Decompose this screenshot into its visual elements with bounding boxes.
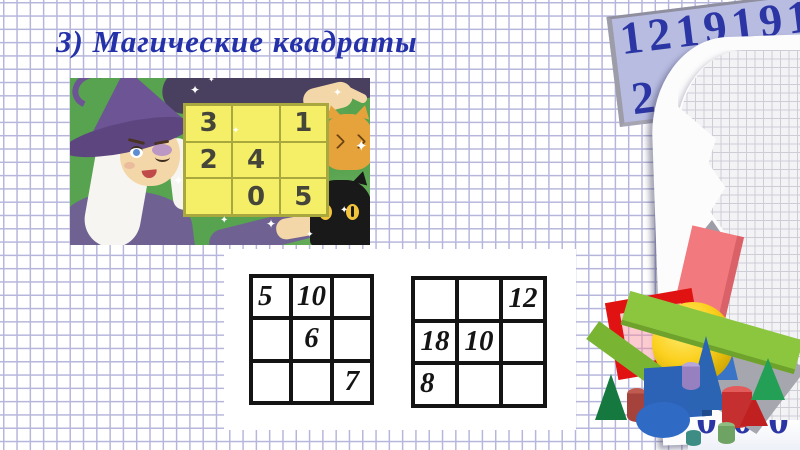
sparkle-icon: ✦ xyxy=(333,88,342,99)
purple-cylinder-shape xyxy=(682,362,700,390)
grid-cell: 5 xyxy=(251,276,291,318)
grid-cell: 8 xyxy=(413,363,457,406)
grid-cell: 12 xyxy=(501,278,545,321)
grid-cell xyxy=(251,318,291,360)
grid-cell xyxy=(501,363,545,406)
green-cone-shape xyxy=(595,374,627,420)
grid-cell xyxy=(332,276,372,318)
grid-cell: 10 xyxy=(291,276,331,318)
sparkle-icon: ✦ xyxy=(355,140,368,155)
magic-cell: 0 xyxy=(232,178,279,215)
witch-winking-eye xyxy=(155,152,170,162)
sparkle-icon: ✦ xyxy=(266,218,276,230)
sparkle-icon: ✦ xyxy=(232,126,240,135)
sparkle-icon: ✦ xyxy=(208,78,215,84)
grid-cell: 7 xyxy=(332,361,372,403)
grid-cell: 6 xyxy=(291,318,331,360)
grid-cell xyxy=(413,278,457,321)
sparkle-icon: ✦ xyxy=(220,216,228,226)
magic-cell: 1 xyxy=(280,105,327,142)
magic-cell: 2 xyxy=(185,142,232,179)
grid-cell xyxy=(501,321,545,364)
magic-cell xyxy=(185,178,232,215)
witch-eye xyxy=(130,146,143,158)
grid-cell: 10 xyxy=(457,321,501,364)
slide-title: 3) Магические квадраты xyxy=(56,24,536,60)
grid-cell xyxy=(457,363,501,406)
sparkle-icon: ✦ xyxy=(173,174,184,187)
sparkle-icon: ✦ xyxy=(306,230,314,239)
magic-cell: 3 xyxy=(185,105,232,142)
magic-cell: 5 xyxy=(280,178,327,215)
puzzle-grid-right: 12 18 10 8 xyxy=(411,276,547,408)
grid-cell: 18 xyxy=(413,321,457,364)
magic-cell xyxy=(280,142,327,179)
magic-cell xyxy=(232,105,279,142)
witch-illustration: 3 1 2 4 0 5 ✦ ✦ ✦ ✦ ✦ ✦ ✦ ✦ ✦ ✦ xyxy=(70,78,370,245)
slide-background: 3) Магические квадраты 1219191 222 000 xyxy=(0,0,800,450)
blue-sphere-shape xyxy=(636,402,690,438)
grid-cell xyxy=(332,318,372,360)
teal-cylinder-shape xyxy=(686,430,701,446)
magic-cell: 4 xyxy=(232,142,279,179)
grid-cell xyxy=(291,361,331,403)
magic-square: 3 1 2 4 0 5 xyxy=(183,103,329,217)
green-cylinder-shape xyxy=(718,422,735,444)
sparkle-icon: ✦ xyxy=(340,206,348,216)
witch-cheek xyxy=(124,162,135,169)
grid-cell xyxy=(251,361,291,403)
cat-eye-icon xyxy=(330,134,346,150)
grid-cell xyxy=(457,278,501,321)
cat-ear-icon xyxy=(355,103,370,119)
puzzle-grid-left: 5 10 6 7 xyxy=(249,274,374,405)
sparkle-icon: ✦ xyxy=(190,84,200,96)
